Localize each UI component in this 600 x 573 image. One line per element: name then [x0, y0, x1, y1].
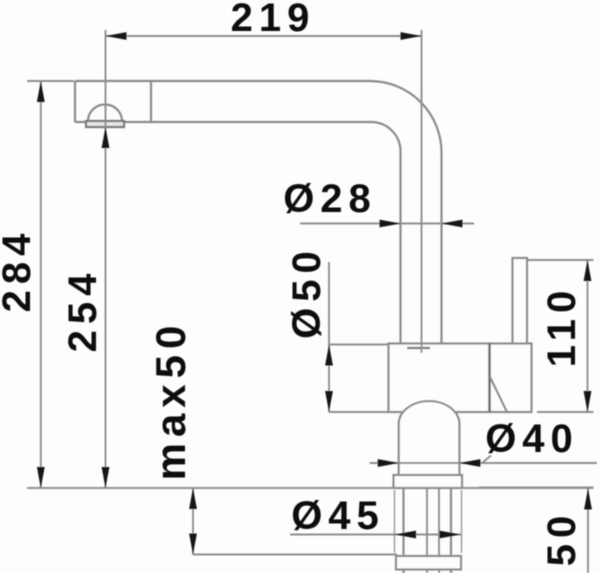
svg-text:110: 110	[540, 285, 584, 368]
svg-text:Ø50: Ø50	[285, 245, 329, 339]
svg-text:284: 284	[0, 228, 39, 313]
svg-text:max50: max50	[147, 320, 194, 481]
svg-text:254: 254	[61, 268, 105, 353]
svg-text:50: 50	[540, 510, 584, 567]
svg-text:219: 219	[231, 0, 316, 40]
svg-text:Ø45: Ø45	[291, 494, 385, 538]
svg-text:Ø28: Ø28	[283, 177, 377, 221]
svg-text:Ø40: Ø40	[485, 417, 579, 461]
